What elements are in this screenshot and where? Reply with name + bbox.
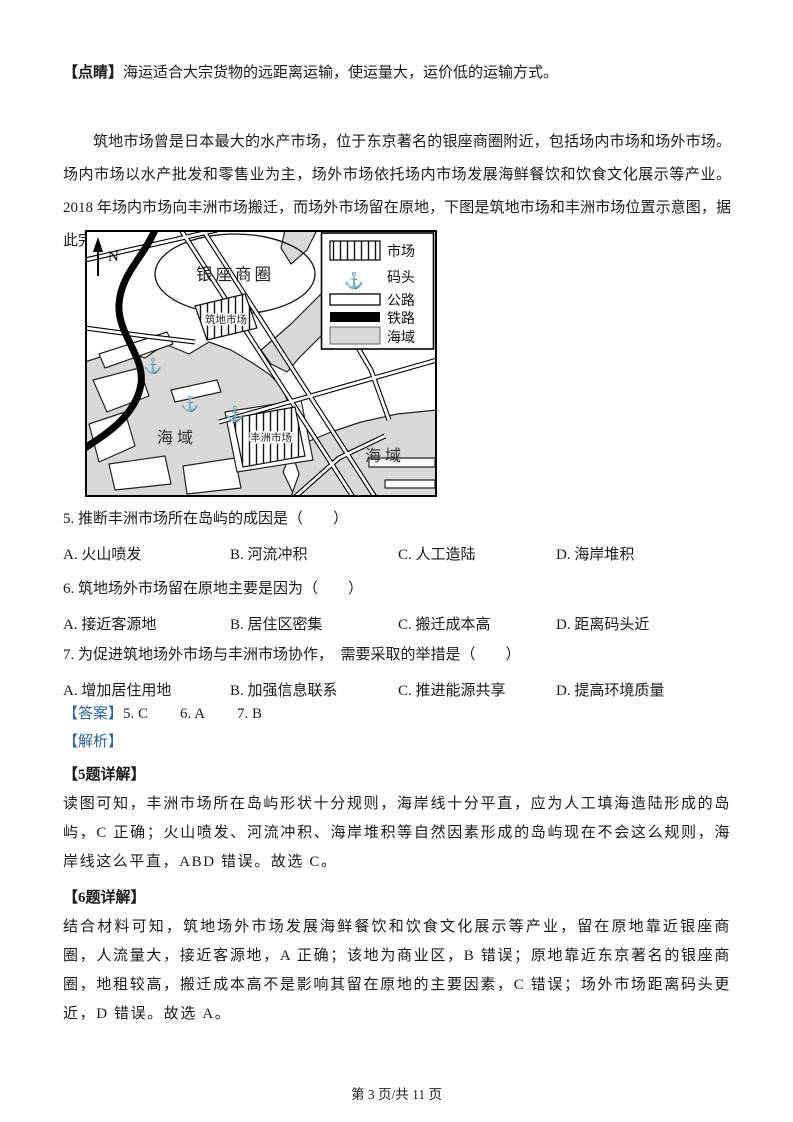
map-legend: ⚓ 市场 码头 公路 铁路 海域 xyxy=(322,233,434,349)
option-6d: D. 距离码头近 xyxy=(556,613,649,634)
anchor-icon: ⚓ xyxy=(144,357,163,375)
option-5a: A. 火山喷发 xyxy=(63,543,141,564)
answer-item-5: 5. C xyxy=(123,706,148,722)
answer-item-6: 6. A xyxy=(180,706,205,722)
legend-label-dock: 码头 xyxy=(387,270,415,286)
legend-dock-anchor-icon: ⚓ xyxy=(344,271,364,290)
ginza-label: 银座商圈 xyxy=(196,265,274,284)
option-7b: B. 加强信息联系 xyxy=(230,679,338,700)
tip-note: 【点睛】海运适合大宗货物的远距离运输，使运量大，运价低的运输方式。 xyxy=(63,62,731,84)
legend-road-swatch xyxy=(330,294,380,305)
legend-market-swatch xyxy=(330,241,380,260)
legend-sea-swatch xyxy=(330,327,380,344)
detail-5-text: 读图可知，丰洲市场所在岛屿形状十分规则，海岸线十分平直，应为人工填海造陆形成的岛… xyxy=(63,790,731,877)
question-7-number: 7. xyxy=(63,647,74,663)
answer-line: 【答案】5. C6. A7. B xyxy=(63,703,731,725)
detail-6-heading: 【6题详解】 xyxy=(63,887,731,909)
analysis-label: 【解析】 xyxy=(63,731,731,753)
legend-railway-swatch xyxy=(330,312,380,322)
question-5-number: 5. xyxy=(63,511,74,527)
option-5d: D. 海岸堆积 xyxy=(556,543,634,564)
tip-text: 海运适合大宗货物的远距离运输，使运量大，运价低的运输方式。 xyxy=(123,65,558,81)
answer-label: 【答案】 xyxy=(63,706,123,722)
sea-label-1: 海域 xyxy=(157,429,197,447)
detail-5-heading: 【5题详解】 xyxy=(63,764,731,786)
option-7d: D. 提高环境质量 xyxy=(556,679,664,700)
map-figure: ⚓ ⚓ ⚓ 银座商圈 筑地市场 丰洲市场 海域 海域 N ⚓ 市场 码头 公路 … xyxy=(85,230,437,497)
answer-item-7: 7. B xyxy=(237,706,262,722)
page-footer: 第 3 页/共 11 页 xyxy=(0,1083,793,1103)
option-7a: A. 增加居住用地 xyxy=(63,679,171,700)
detail-6-text: 结合材料可知，筑地场外市场发展海鲜餐饮和饮食文化展示等产业，留在原地靠近银座商圈… xyxy=(63,913,731,1029)
question-6-number: 6. xyxy=(63,581,74,597)
legend-label-sea: 海域 xyxy=(387,330,415,346)
option-6a: A. 接近客源地 xyxy=(63,613,156,634)
option-6c: C. 搬迁成本高 xyxy=(398,613,491,634)
anchor-icon: ⚓ xyxy=(226,405,245,423)
legend-label-market: 市场 xyxy=(387,243,415,260)
question-6-options: A. 接近客源地 B. 居住区密集 C. 搬迁成本高 D. 距离码头近 xyxy=(63,613,763,635)
legend-label-railway: 铁路 xyxy=(387,311,415,327)
anchor-icon: ⚓ xyxy=(181,395,200,413)
legend-label-road: 公路 xyxy=(387,293,415,309)
north-label: N xyxy=(108,249,119,265)
option-5b: B. 河流冲积 xyxy=(230,543,308,564)
question-5-stem: 5. 推断丰洲市场所在岛屿的成因是（ ） xyxy=(63,508,731,530)
option-7c: C. 推进能源共享 xyxy=(398,679,506,700)
question-6-stem: 6. 筑地场外市场留在原地主要是因为（ ） xyxy=(63,578,731,600)
toyosu-label: 丰洲市场 xyxy=(250,431,292,444)
question-5-options: A. 火山喷发 B. 河流冲积 C. 人工造陆 D. 海岸堆积 xyxy=(63,543,763,565)
question-7-stem: 7. 为促进筑地场外市场与丰洲市场协作， 需要采取的举措是（ ） xyxy=(63,644,731,666)
option-5c: C. 人工造陆 xyxy=(398,543,476,564)
tip-label: 【点睛】 xyxy=(63,65,123,81)
sea-label-2: 海域 xyxy=(365,447,405,465)
option-6b: B. 居住区密集 xyxy=(230,613,323,634)
question-7-options: A. 增加居住用地 B. 加强信息联系 C. 推进能源共享 D. 提高环境质量 xyxy=(63,679,763,701)
tsukiji-label: 筑地市场 xyxy=(205,313,247,326)
